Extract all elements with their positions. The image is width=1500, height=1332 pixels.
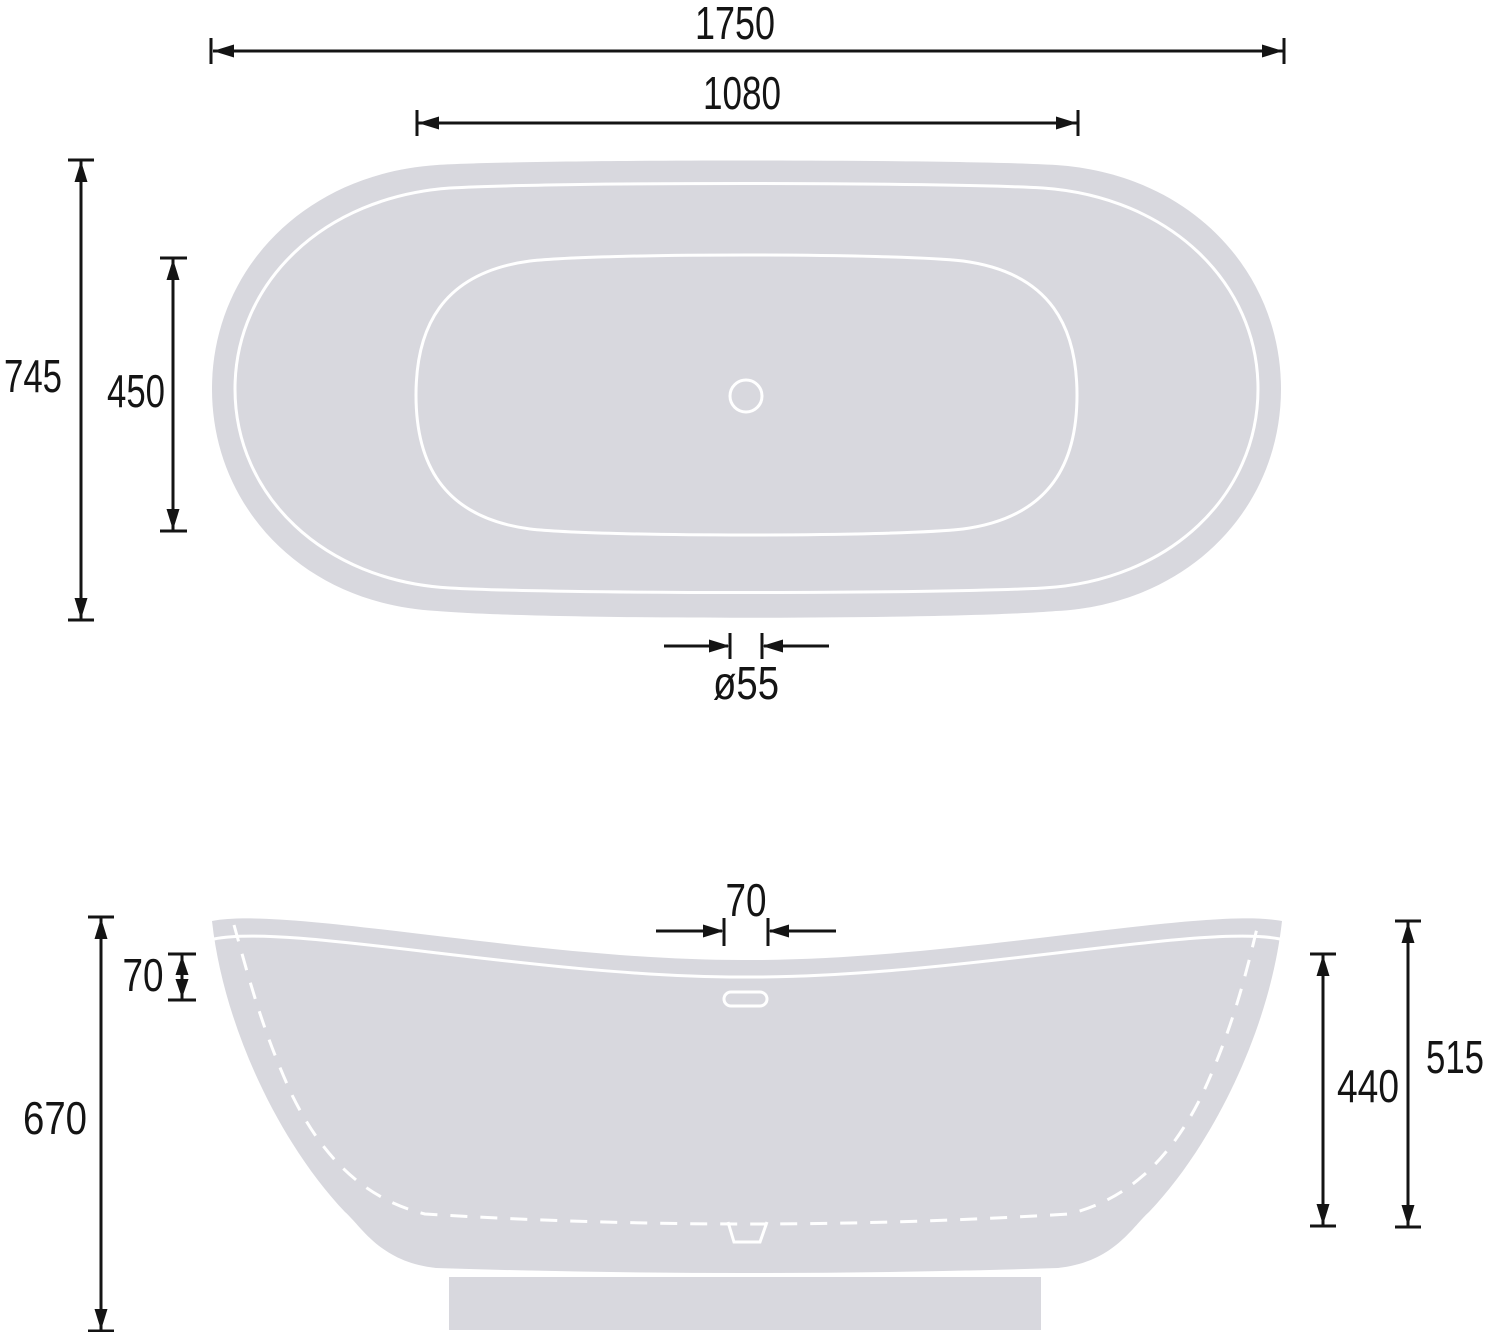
svg-text:70: 70 bbox=[123, 949, 164, 1001]
svg-text:515: 515 bbox=[1426, 1031, 1484, 1083]
svg-text:450: 450 bbox=[107, 365, 165, 417]
svg-text:1080: 1080 bbox=[703, 67, 781, 119]
svg-text:745: 745 bbox=[4, 350, 62, 402]
svg-text:670: 670 bbox=[23, 1092, 87, 1144]
svg-text:ø55: ø55 bbox=[713, 657, 779, 709]
svg-text:70: 70 bbox=[726, 874, 767, 926]
svg-text:1750: 1750 bbox=[695, 0, 775, 49]
svg-text:440: 440 bbox=[1337, 1060, 1399, 1112]
